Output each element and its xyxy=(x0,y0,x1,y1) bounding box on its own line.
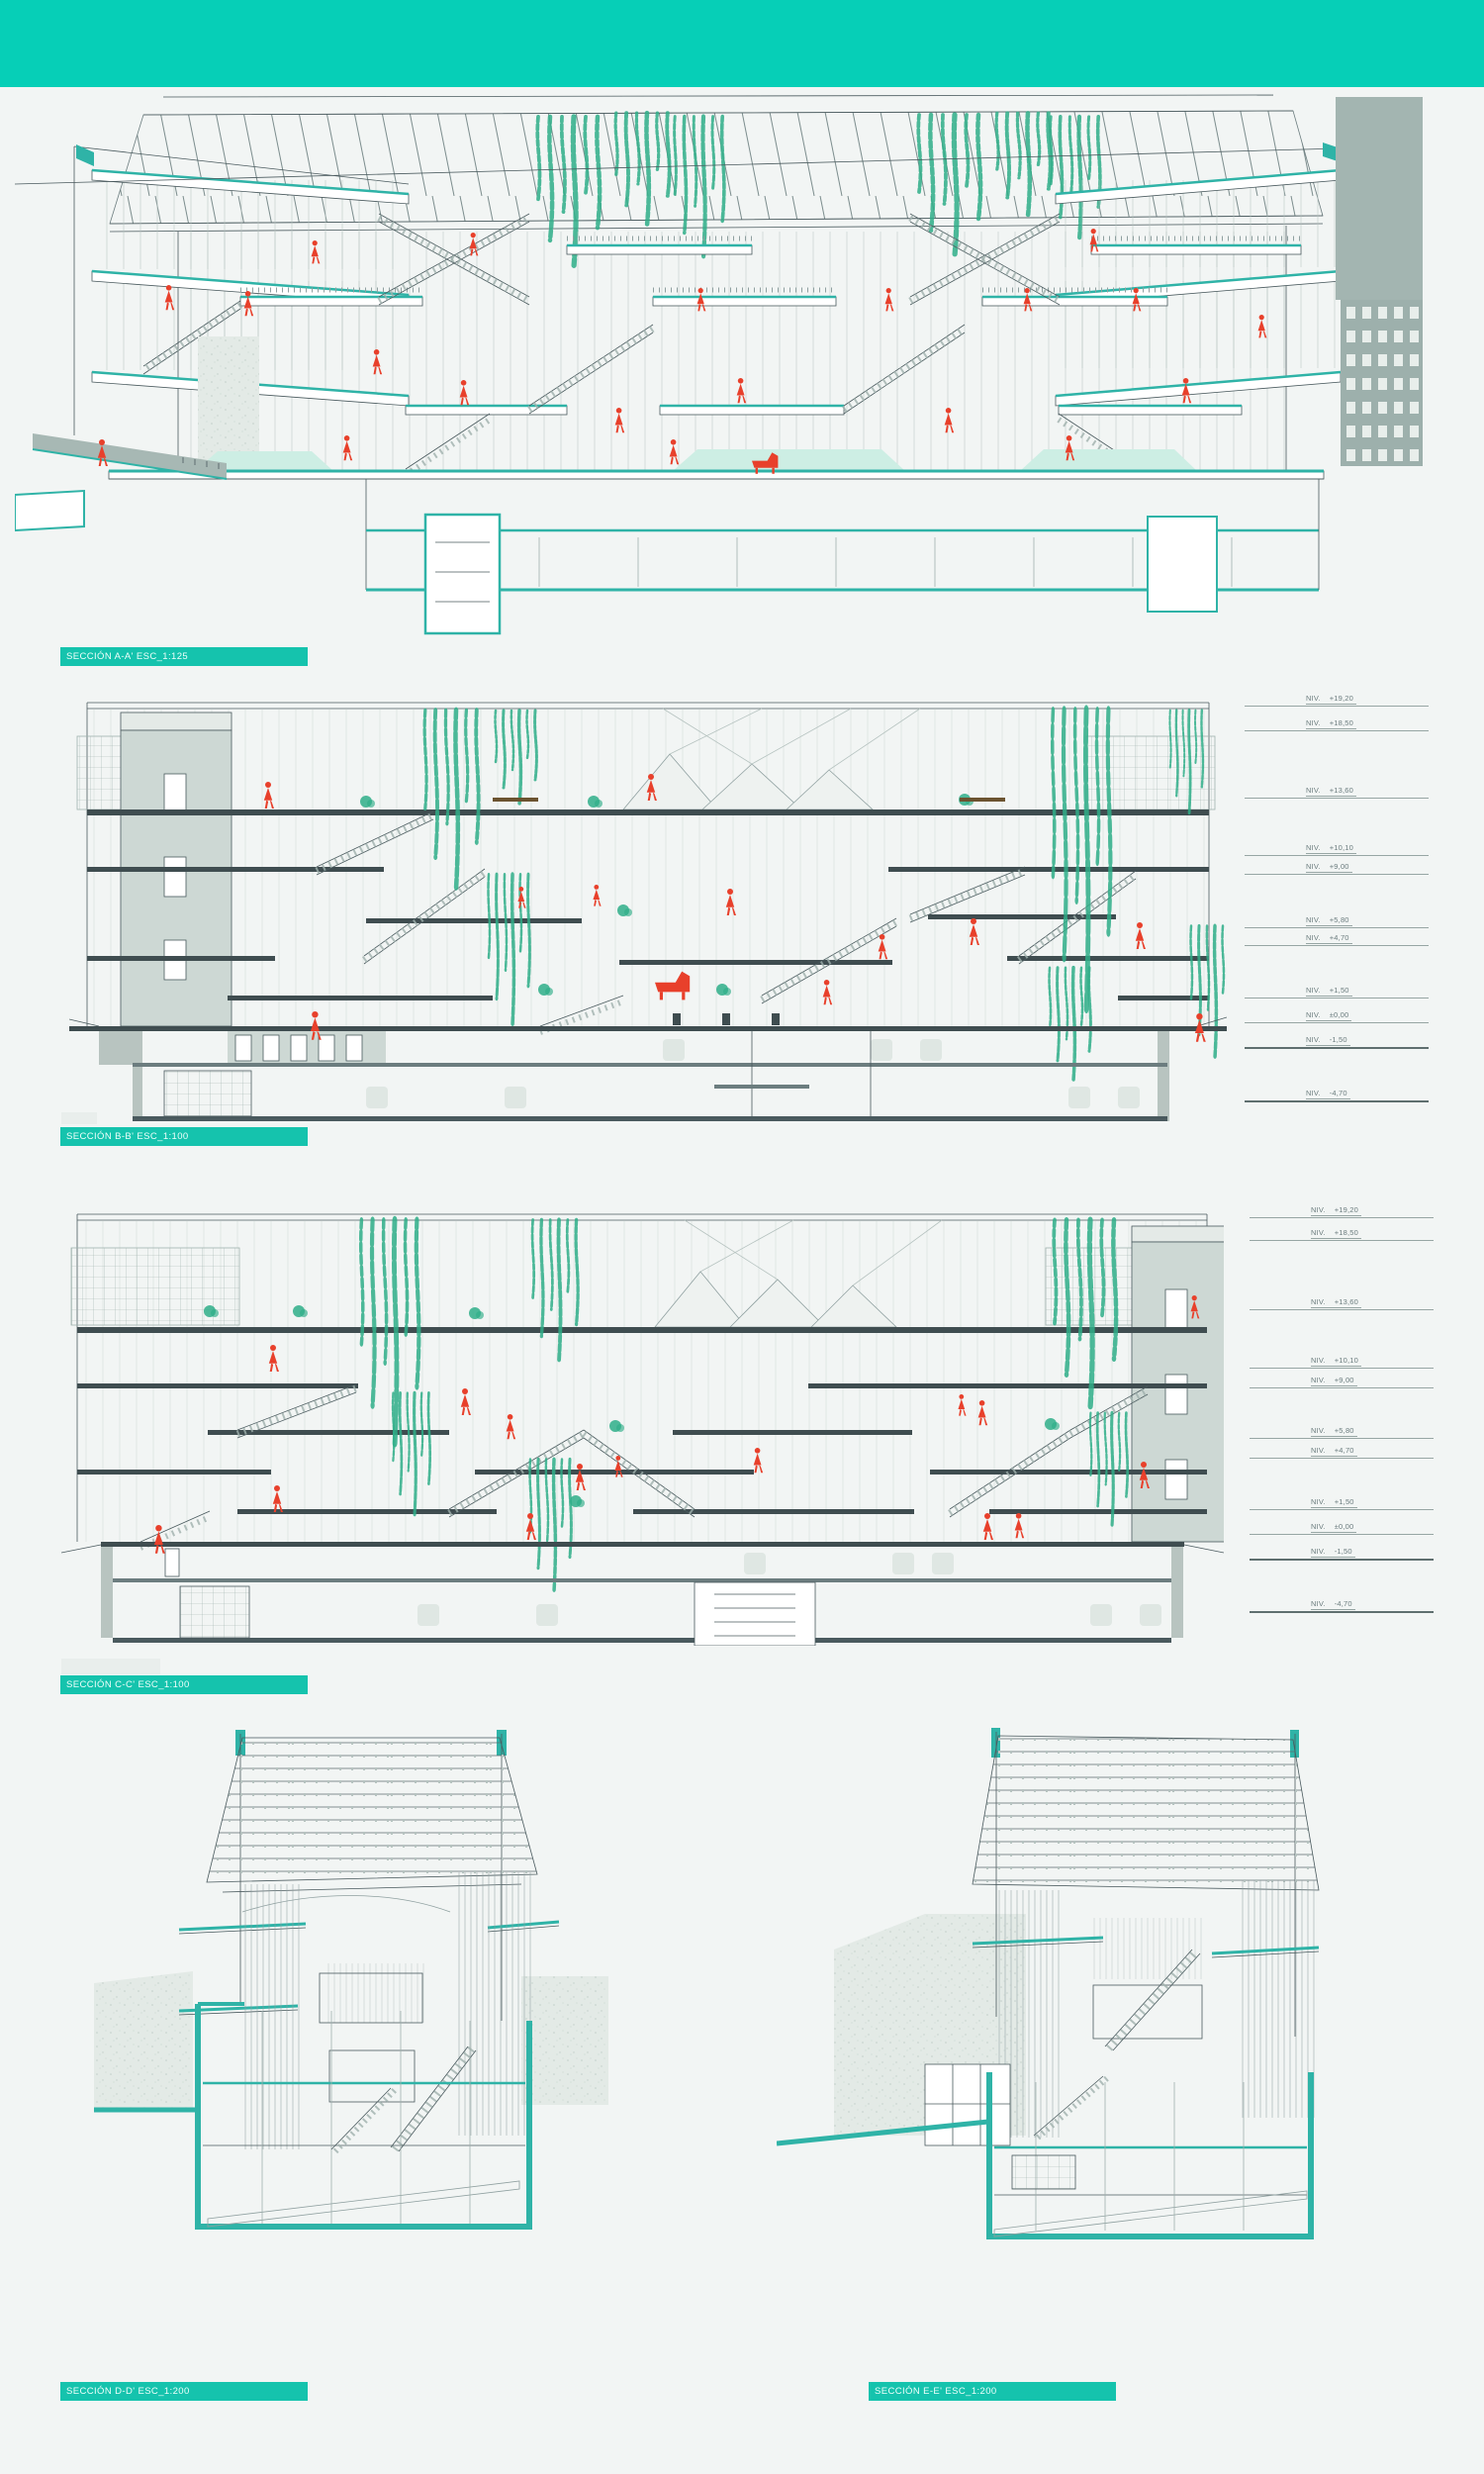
level-annotation: NIV.+10,10 xyxy=(1245,844,1429,856)
level-annotation: NIV.+19,20 xyxy=(1250,1206,1434,1218)
ghost-patch xyxy=(61,1112,97,1124)
basement xyxy=(61,1542,1224,1646)
ground-slab xyxy=(109,449,1324,479)
level-annotation: NIV.+9,00 xyxy=(1245,863,1429,875)
basement xyxy=(366,479,1319,633)
stair-shaft xyxy=(695,1582,815,1646)
level-annotation: NIV.-1,50 xyxy=(1245,1036,1429,1049)
context-building xyxy=(1336,97,1423,466)
section-b-label-bar: SECCIÓN B-B' ESC_1:100 xyxy=(60,1127,308,1146)
level-annotation: NIV.+19,20 xyxy=(1245,695,1429,707)
section-c-label-bar: SECCIÓN C-C' ESC_1:100 xyxy=(60,1675,308,1694)
level-annotation: NIV.±0,00 xyxy=(1250,1523,1434,1535)
ghost-patch xyxy=(61,1659,160,1674)
section-a-label-bar: SECCIÓN A-A' ESC_1:125 xyxy=(60,647,308,666)
concrete-pier xyxy=(198,336,259,471)
level-annotation: NIV.+4,70 xyxy=(1250,1447,1434,1459)
section-e-label-bar: SECCIÓN E-E' ESC_1:200 xyxy=(869,2382,1116,2401)
tub-stair xyxy=(331,2088,395,2151)
level-annotation: NIV.+13,60 xyxy=(1250,1298,1434,1310)
level-annotation: NIV.-4,70 xyxy=(1250,1600,1434,1613)
level-annotation: NIV.±0,00 xyxy=(1245,1011,1429,1023)
slat-wall xyxy=(1240,1880,1319,2118)
glazed-box xyxy=(925,2064,1010,2145)
level-annotation: NIV.+4,70 xyxy=(1245,934,1429,946)
level-annotations-c: NIV.+19,20 NIV.+18,50 NIV.+13,60 NIV.+10… xyxy=(1250,1202,1434,1618)
drawing-section-e xyxy=(777,1720,1331,2375)
section-d-label: SECCIÓN D-D' ESC_1:200 xyxy=(66,2386,190,2397)
level-annotation: NIV.+1,50 xyxy=(1250,1498,1434,1510)
header-bar xyxy=(0,0,1484,87)
roof-deck xyxy=(973,1736,1319,1890)
section-b-label: SECCIÓN B-B' ESC_1:100 xyxy=(66,1131,189,1142)
drawing-section-c xyxy=(61,1200,1224,1646)
slat-wall xyxy=(242,1884,300,2149)
level-annotation: NIV.+9,00 xyxy=(1250,1377,1434,1388)
section-c-label: SECCIÓN C-C' ESC_1:100 xyxy=(66,1679,190,1690)
level-annotation: NIV.+18,50 xyxy=(1245,719,1429,731)
level-annotation: NIV.+5,80 xyxy=(1250,1427,1434,1439)
drawing-section-d xyxy=(94,1724,608,2377)
drawing-section-b xyxy=(69,691,1227,1126)
level-annotation: NIV.+5,80 xyxy=(1245,916,1429,928)
level-annotation: NIV.-4,70 xyxy=(1245,1090,1429,1102)
section-a-label: SECCIÓN A-A' ESC_1:125 xyxy=(66,651,188,662)
level-annotations-b: NIV.+19,20 NIV.+18,50 NIV.+13,60 NIV.+10… xyxy=(1245,693,1429,1108)
roof-deck xyxy=(207,1738,537,1882)
ground-mass-left xyxy=(94,1971,193,2110)
presentation-board: SECCIÓN A-A' ESC_1:125 xyxy=(0,0,1484,2474)
drawing-section-a xyxy=(15,87,1430,641)
level-annotation: NIV.+1,50 xyxy=(1245,987,1429,999)
section-d-label-bar: SECCIÓN D-D' ESC_1:200 xyxy=(60,2382,308,2401)
level-annotation: NIV.+13,60 xyxy=(1245,787,1429,799)
level-annotation: NIV.-1,50 xyxy=(1250,1548,1434,1561)
ramp-hatch xyxy=(1012,2155,1075,2189)
level-annotation: NIV.+18,50 xyxy=(1250,1229,1434,1241)
section-e-label: SECCIÓN E-E' ESC_1:200 xyxy=(875,2386,997,2397)
basement xyxy=(69,1017,1227,1121)
level-annotation: NIV.+10,10 xyxy=(1250,1357,1434,1369)
